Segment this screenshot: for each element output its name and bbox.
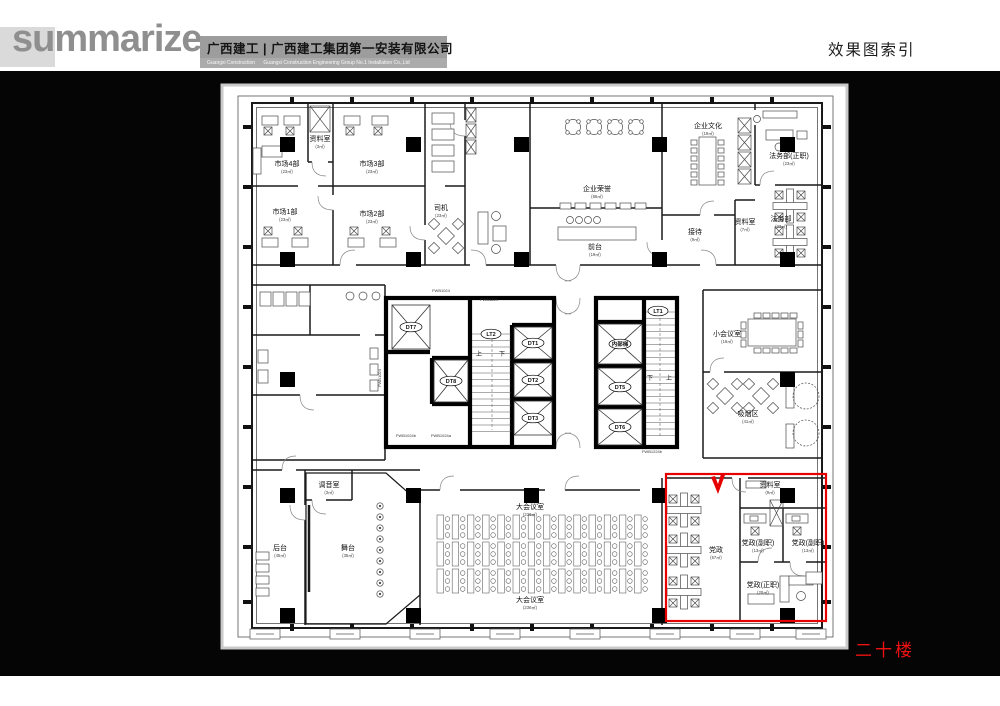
room-area-label: (13㎡) bbox=[802, 547, 814, 553]
room-area-label: (23㎡) bbox=[435, 212, 447, 218]
room-area-label: (9㎡) bbox=[690, 236, 700, 242]
room-label: 市场4部 bbox=[275, 159, 300, 168]
room-label: 司机 bbox=[434, 203, 448, 212]
elevator-label: DT8 bbox=[446, 379, 456, 385]
room-label: 舞台 bbox=[341, 543, 355, 552]
room-label: 大会议室 bbox=[516, 595, 544, 604]
room-label: 市场3部 bbox=[360, 159, 385, 168]
door-code-label: FWB1024 bbox=[432, 288, 451, 293]
stair-label: LT1 bbox=[653, 309, 662, 315]
room-label: 后台 bbox=[273, 543, 287, 552]
room-label: 资料室 bbox=[760, 480, 781, 489]
room-area-label: (23㎡) bbox=[366, 168, 378, 174]
room-label: 企业文化 bbox=[694, 121, 722, 130]
room-area-label: (23㎡) bbox=[281, 168, 293, 174]
room-area-label: (7㎡) bbox=[740, 226, 750, 232]
room-label: 企业荣誉 bbox=[583, 184, 611, 193]
room-label: 党政(正职) bbox=[747, 580, 780, 589]
room-area-label: (35㎡) bbox=[342, 552, 354, 558]
elevator-label: 内部梯 bbox=[612, 340, 629, 348]
door-code-label: FWB1024b bbox=[396, 433, 417, 438]
room-area-label: (57㎡) bbox=[710, 554, 722, 560]
elevator-label: DT6 bbox=[615, 425, 625, 431]
room-label: 小会议室 bbox=[713, 329, 741, 338]
elevator-label: DT7 bbox=[406, 325, 416, 331]
door-code-label: FWB1024 bbox=[377, 368, 382, 387]
room-area-label: (23㎡) bbox=[783, 160, 795, 166]
room-label: 调音室 bbox=[319, 480, 340, 489]
room-area-label: (19㎡) bbox=[589, 251, 601, 257]
door-code-label: FWB1024a bbox=[431, 433, 452, 438]
stair-direction-label: 上 bbox=[666, 374, 672, 382]
room-label: 法务部 bbox=[771, 214, 792, 223]
page: summarize 广西建工 | 广西建工集团第一安装有限公司 Guangxi … bbox=[0, 0, 1000, 706]
room-label: 资料室 bbox=[310, 134, 331, 143]
room-area-label: (13㎡) bbox=[752, 547, 764, 553]
room-area-label: (41㎡) bbox=[742, 418, 754, 424]
room-area-label: (19㎡) bbox=[702, 130, 714, 136]
room-label: 党政(副职) bbox=[742, 538, 775, 547]
stair-direction-label: 下 bbox=[499, 351, 505, 358]
room-area-label: (20㎡) bbox=[757, 589, 769, 595]
room-area-label: (16㎡) bbox=[721, 338, 733, 344]
room-area-label: (236㎡) bbox=[523, 604, 538, 610]
door-code-label: FWB1224b bbox=[642, 449, 663, 454]
door-code-label: FWB1224 bbox=[480, 297, 499, 302]
room-area-label: (9㎡) bbox=[765, 489, 775, 495]
room-label: 接待 bbox=[688, 227, 702, 236]
room-area-label: (236㎡) bbox=[523, 511, 538, 517]
elevator-label: DT2 bbox=[528, 378, 538, 384]
room-area-label: (23㎡) bbox=[366, 218, 378, 224]
room-label: 前台 bbox=[588, 242, 602, 251]
room-label: 大会议室 bbox=[516, 502, 544, 511]
elevator-label: DT5 bbox=[615, 385, 625, 391]
stair-direction-label: 下 bbox=[647, 375, 653, 382]
room-area-label: (3㎡) bbox=[315, 143, 325, 149]
room-area-label: (23㎡) bbox=[775, 223, 787, 229]
elevator-label: DT3 bbox=[528, 416, 538, 422]
room-area-label: (86㎡) bbox=[591, 193, 603, 199]
stair-direction-label: 上 bbox=[476, 350, 482, 358]
room-label: 资料室 bbox=[735, 217, 756, 226]
room-area-label: (3㎡) bbox=[324, 489, 334, 495]
room-label: 法务部(正职) bbox=[769, 151, 809, 160]
floor-label: 二十楼 bbox=[855, 636, 915, 661]
room-label: 市场1部 bbox=[273, 207, 298, 216]
room-label: 吸烟区 bbox=[738, 409, 759, 418]
room-label: 市场2部 bbox=[360, 209, 385, 218]
room-label: 党政(副职) bbox=[792, 538, 825, 547]
room-area-label: (45㎡) bbox=[274, 552, 286, 558]
room-area-label: (23㎡) bbox=[279, 216, 291, 222]
floor-plan: 市场4部(23㎡)资料室(3㎡)市场3部(23㎡)市场1部(23㎡)市场2部(2… bbox=[0, 0, 1000, 706]
elevator-label: DT1 bbox=[528, 341, 538, 347]
stair-label: LT2 bbox=[486, 332, 495, 338]
room-label: 党政 bbox=[709, 545, 723, 554]
